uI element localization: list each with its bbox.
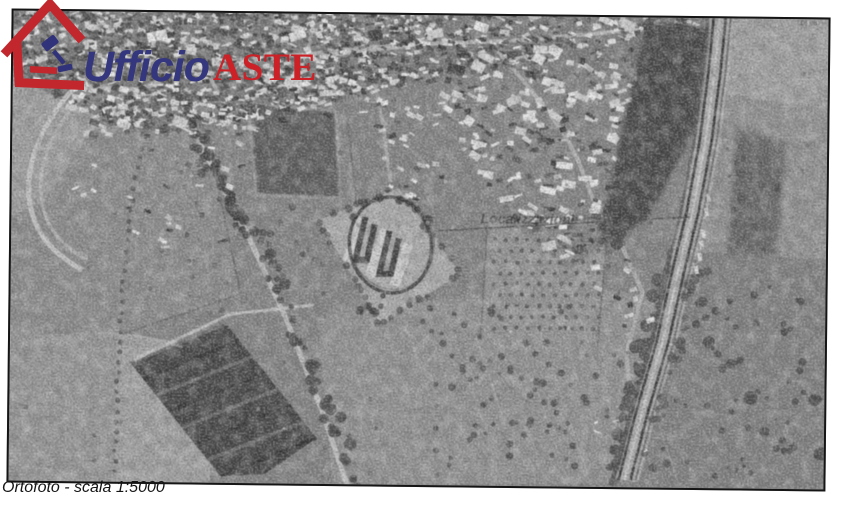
svg-text:Ufficio: Ufficio — [83, 43, 209, 91]
svg-text:ASTE: ASTE — [213, 46, 317, 89]
